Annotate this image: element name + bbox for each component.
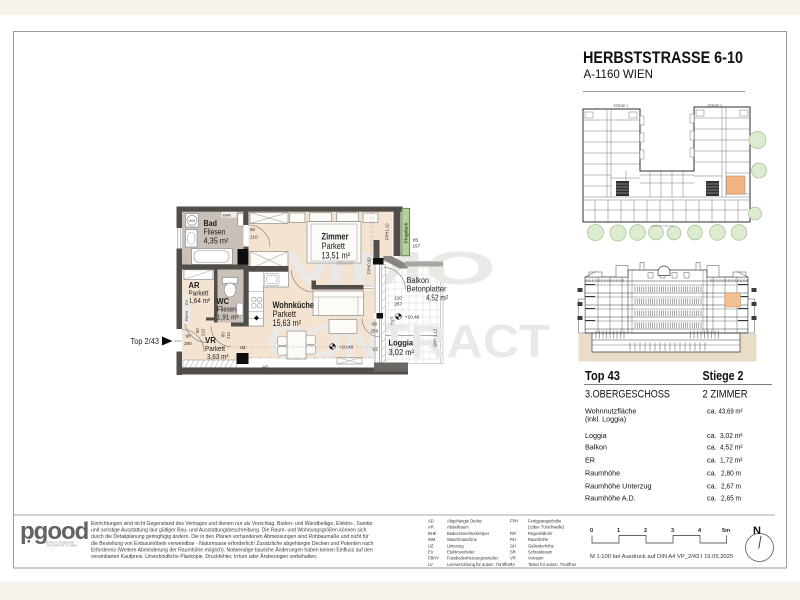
svg-text:Erfordernis (Weitere Abminderu: Erfordernis (Weitere Abminderung der Rau… [91,546,373,553]
svg-text:85: 85 [413,238,419,243]
svg-text:3,02 m²: 3,02 m² [389,348,415,357]
svg-text:267: 267 [395,302,403,307]
svg-text:und sonstige Ausstattung laut: und sonstige Ausstattung laut gültiger B… [91,528,367,534]
svg-text:A-1160 WIEN: A-1160 WIEN [584,69,653,81]
svg-text:Balkon: Balkon [585,443,607,452]
svg-text:M 1:100 bei Ausdruck auf DIN A: M 1:100 bei Ausdruck auf DIN A4 VP_2/43 … [590,554,733,560]
svg-text:4,35 m²: 4,35 m² [204,237,229,246]
svg-text:uz: uz [240,345,246,351]
svg-text:3,63 m²: 3,63 m² [207,352,229,361]
svg-text:80: 80 [221,332,226,337]
svg-text:Betonplatter: Betonplatter [407,285,447,294]
svg-text:AD: AD [262,365,269,370]
svg-text:SR: SR [510,550,516,555]
svg-text:VR: VR [510,556,516,561]
svg-text:Raumhöhe Unterzug: Raumhöhe Unterzug [585,482,651,491]
svg-text:43,69 m²: 43,69 m² [719,407,744,416]
svg-text:AR: AR [428,525,434,530]
svg-text:EV: EV [428,550,434,555]
svg-text:ca.: ca. [707,469,717,478]
svg-text:ca.: ca. [707,431,717,440]
svg-text:Fertigparapethöhe: Fertigparapethöhe [528,519,562,524]
svg-text:ca.: ca. [707,407,717,416]
svg-text:Bad: Bad [204,218,218,228]
svg-text:290: 290 [184,341,192,346]
svg-text:+10,46: +10,46 [405,315,420,320]
svg-text:Taster für autom. Türöffner: Taster für autom. Türöffner [528,562,577,567]
svg-text:Regenfallrohr: Regenfallrohr [528,531,553,536]
svg-text:15,63 m²: 15,63 m² [273,318,302,328]
svg-text:+10,40: +10,40 [339,345,354,350]
svg-text:AD: AD [428,519,434,524]
svg-text:Geländerhöhe: Geländerhöhe [528,543,555,548]
svg-text:Badezimmerheizkörper: Badezimmerheizkörper [447,531,490,536]
svg-text:3: 3 [671,528,674,534]
svg-text:2: 2 [644,528,647,534]
svg-text:TA: TA [510,562,515,567]
svg-text:Top 2/43: Top 2/43 [131,337,160,346]
svg-text:N: N [753,525,761,537]
svg-text:2 ZIMMER: 2 ZIMMER [703,389,748,401]
svg-text:210: 210 [201,328,206,336]
svg-text:Abgehängte Decke: Abgehängte Decke [447,519,483,524]
svg-text:FPH1,10: FPH1,10 [385,223,390,240]
svg-text:Vorraum: Vorraum [528,556,544,561]
svg-text:110: 110 [395,296,403,301]
svg-text:durch die Detailplanung gering: durch die Detailplanung geringfügig ände… [91,534,369,540]
svg-text:vereinbarten Kaufpreis. Unverb: vereinbarten Kaufpreis. Unverbindliche P… [91,553,318,560]
svg-text:ARCHITEKTEN ZT-GMBH: ARCHITEKTEN ZT-GMBH [46,544,77,548]
svg-text:BHK: BHK [428,531,437,536]
svg-text:Raumhöhe: Raumhöhe [585,469,620,478]
svg-text:GH+ 1,12: GH+ 1,12 [433,328,438,347]
svg-text:0: 0 [590,528,593,534]
svg-text:210: 210 [250,235,258,240]
svg-text:HERBSTSTRASSE 6-10: HERBSTSTRASSE 6-10 [583,49,743,67]
svg-text:80: 80 [195,328,200,333]
svg-text:die Bestellung von Einbaumöbel: die Bestellung von Einbaumöbeln verwendb… [91,541,373,547]
svg-text:Leerverrohrung für autom. Türö: Leerverrohrung für autom. Türöffner [447,562,513,567]
svg-text:Elektroverteiler: Elektroverteiler [447,550,475,555]
svg-text:90: 90 [186,334,192,339]
svg-text:ca.: ca. [707,456,717,465]
svg-text:GH: GH [510,543,516,548]
svg-text:2,67 m: 2,67 m [721,482,741,491]
svg-text:210: 210 [226,331,231,339]
svg-text:Loggia: Loggia [585,431,607,440]
svg-text:Parkett: Parkett [322,241,346,251]
svg-text:FPH: FPH [510,519,518,524]
svg-text:UZ: UZ [428,543,434,548]
svg-text:Flugdach: Flugdach [403,222,408,243]
svg-text:BHK: BHK [223,213,232,218]
svg-text:1: 1 [617,528,620,534]
svg-text:2,80 m: 2,80 m [721,469,741,478]
svg-text:Loggia: Loggia [389,338,414,348]
svg-text:ER: ER [585,456,595,465]
svg-text:180x200: 180x200 [336,261,354,266]
svg-text:13,51 m²: 13,51 m² [322,251,351,261]
svg-text:4,52 m²: 4,52 m² [426,294,448,303]
svg-text:Raumhöhe: Raumhöhe [528,537,549,542]
svg-text:WM: WM [428,537,436,542]
svg-text:Fliesen: Fliesen [204,228,226,237]
svg-text:HERBSTSTRASSE: HERBSTSTRASSE [651,224,674,228]
svg-text:EV: EV [185,299,189,305]
svg-text:4,52 m²: 4,52 m² [720,443,743,452]
svg-text:1,64 m²: 1,64 m² [189,296,211,305]
svg-text:Fussbodenheizungsverteiler: Fussbodenheizungsverteiler [447,556,499,561]
svg-text:Stiege 2: Stiege 2 [703,368,744,383]
svg-text:(±über Türschwelle): (±über Türschwelle) [528,525,565,530]
svg-text:88: 88 [372,322,378,327]
svg-text:5m: 5m [722,528,730,534]
svg-text:STIEGE 1: STIEGE 1 [614,104,629,108]
svg-text:ca.: ca. [707,443,717,452]
svg-text:FBHV: FBHV [185,310,189,321]
svg-text:Unterzug: Unterzug [447,543,464,548]
svg-text:(inkl. Loggia): (inkl. Loggia) [585,415,626,424]
svg-text:ca.: ca. [707,494,717,503]
svg-text:uz: uz [373,347,379,353]
svg-text:Schrankraum: Schrankraum [528,550,553,555]
svg-text:3,02 m²: 3,02 m² [720,431,743,440]
svg-text:FBHV: FBHV [428,556,439,561]
svg-text:STIEGE 2: STIEGE 2 [708,104,723,108]
svg-text:157: 157 [413,244,421,249]
svg-text:RR: RR [510,531,516,536]
svg-text:2,65 m: 2,65 m [721,494,741,503]
svg-text:Einrichtungen sind nicht Gegen: Einrichtungen sind nicht Gegenstand des … [91,521,373,527]
svg-text:Top 43: Top 43 [585,368,620,383]
svg-text:1,91 m²: 1,91 m² [217,313,239,322]
svg-text:80: 80 [250,227,256,232]
svg-text:Abstellraum: Abstellraum [447,525,469,530]
svg-text:WM: WM [189,219,195,223]
svg-text:RH: RH [510,537,516,542]
svg-text:Waschmaschine: Waschmaschine [447,537,478,542]
svg-text:256: 256 [371,329,379,334]
svg-text:LV: LV [428,562,433,567]
svg-text:RgR: RgR [390,317,395,325]
svg-text:ca.: ca. [707,482,717,491]
svg-text:FPH0,90: FPH0,90 [367,257,372,274]
svg-text:1,72 m²: 1,72 m² [720,456,743,465]
svg-text:3.OBERGESCHOSS: 3.OBERGESCHOSS [585,389,670,401]
svg-text:Raumhöhe A.D.: Raumhöhe A.D. [585,494,636,503]
